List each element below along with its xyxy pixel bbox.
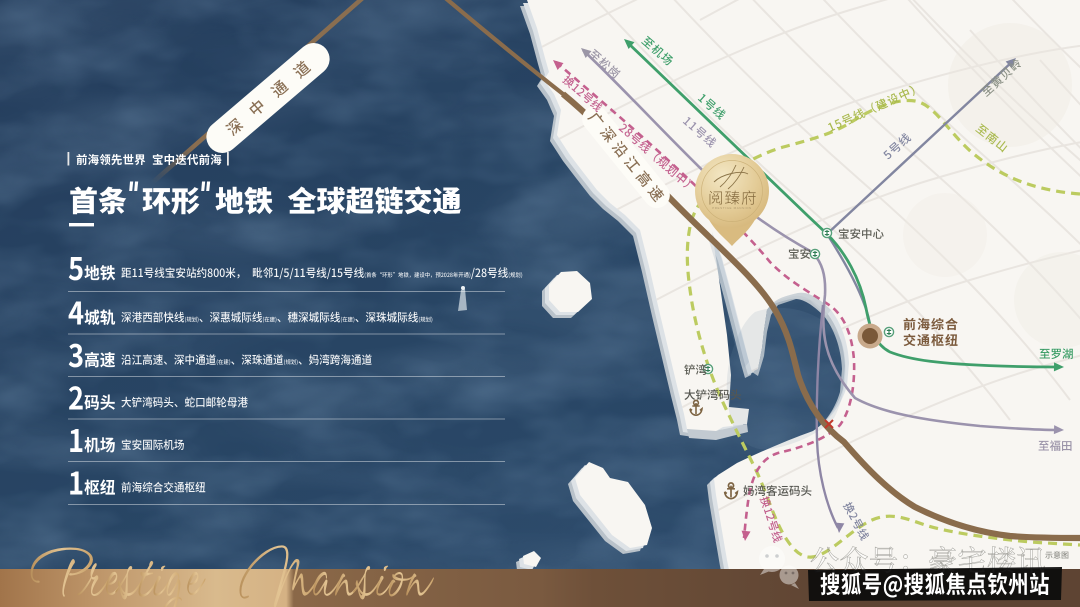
svg-text:PRESTIGE MANSION: PRESTIGE MANSION: [712, 206, 752, 210]
